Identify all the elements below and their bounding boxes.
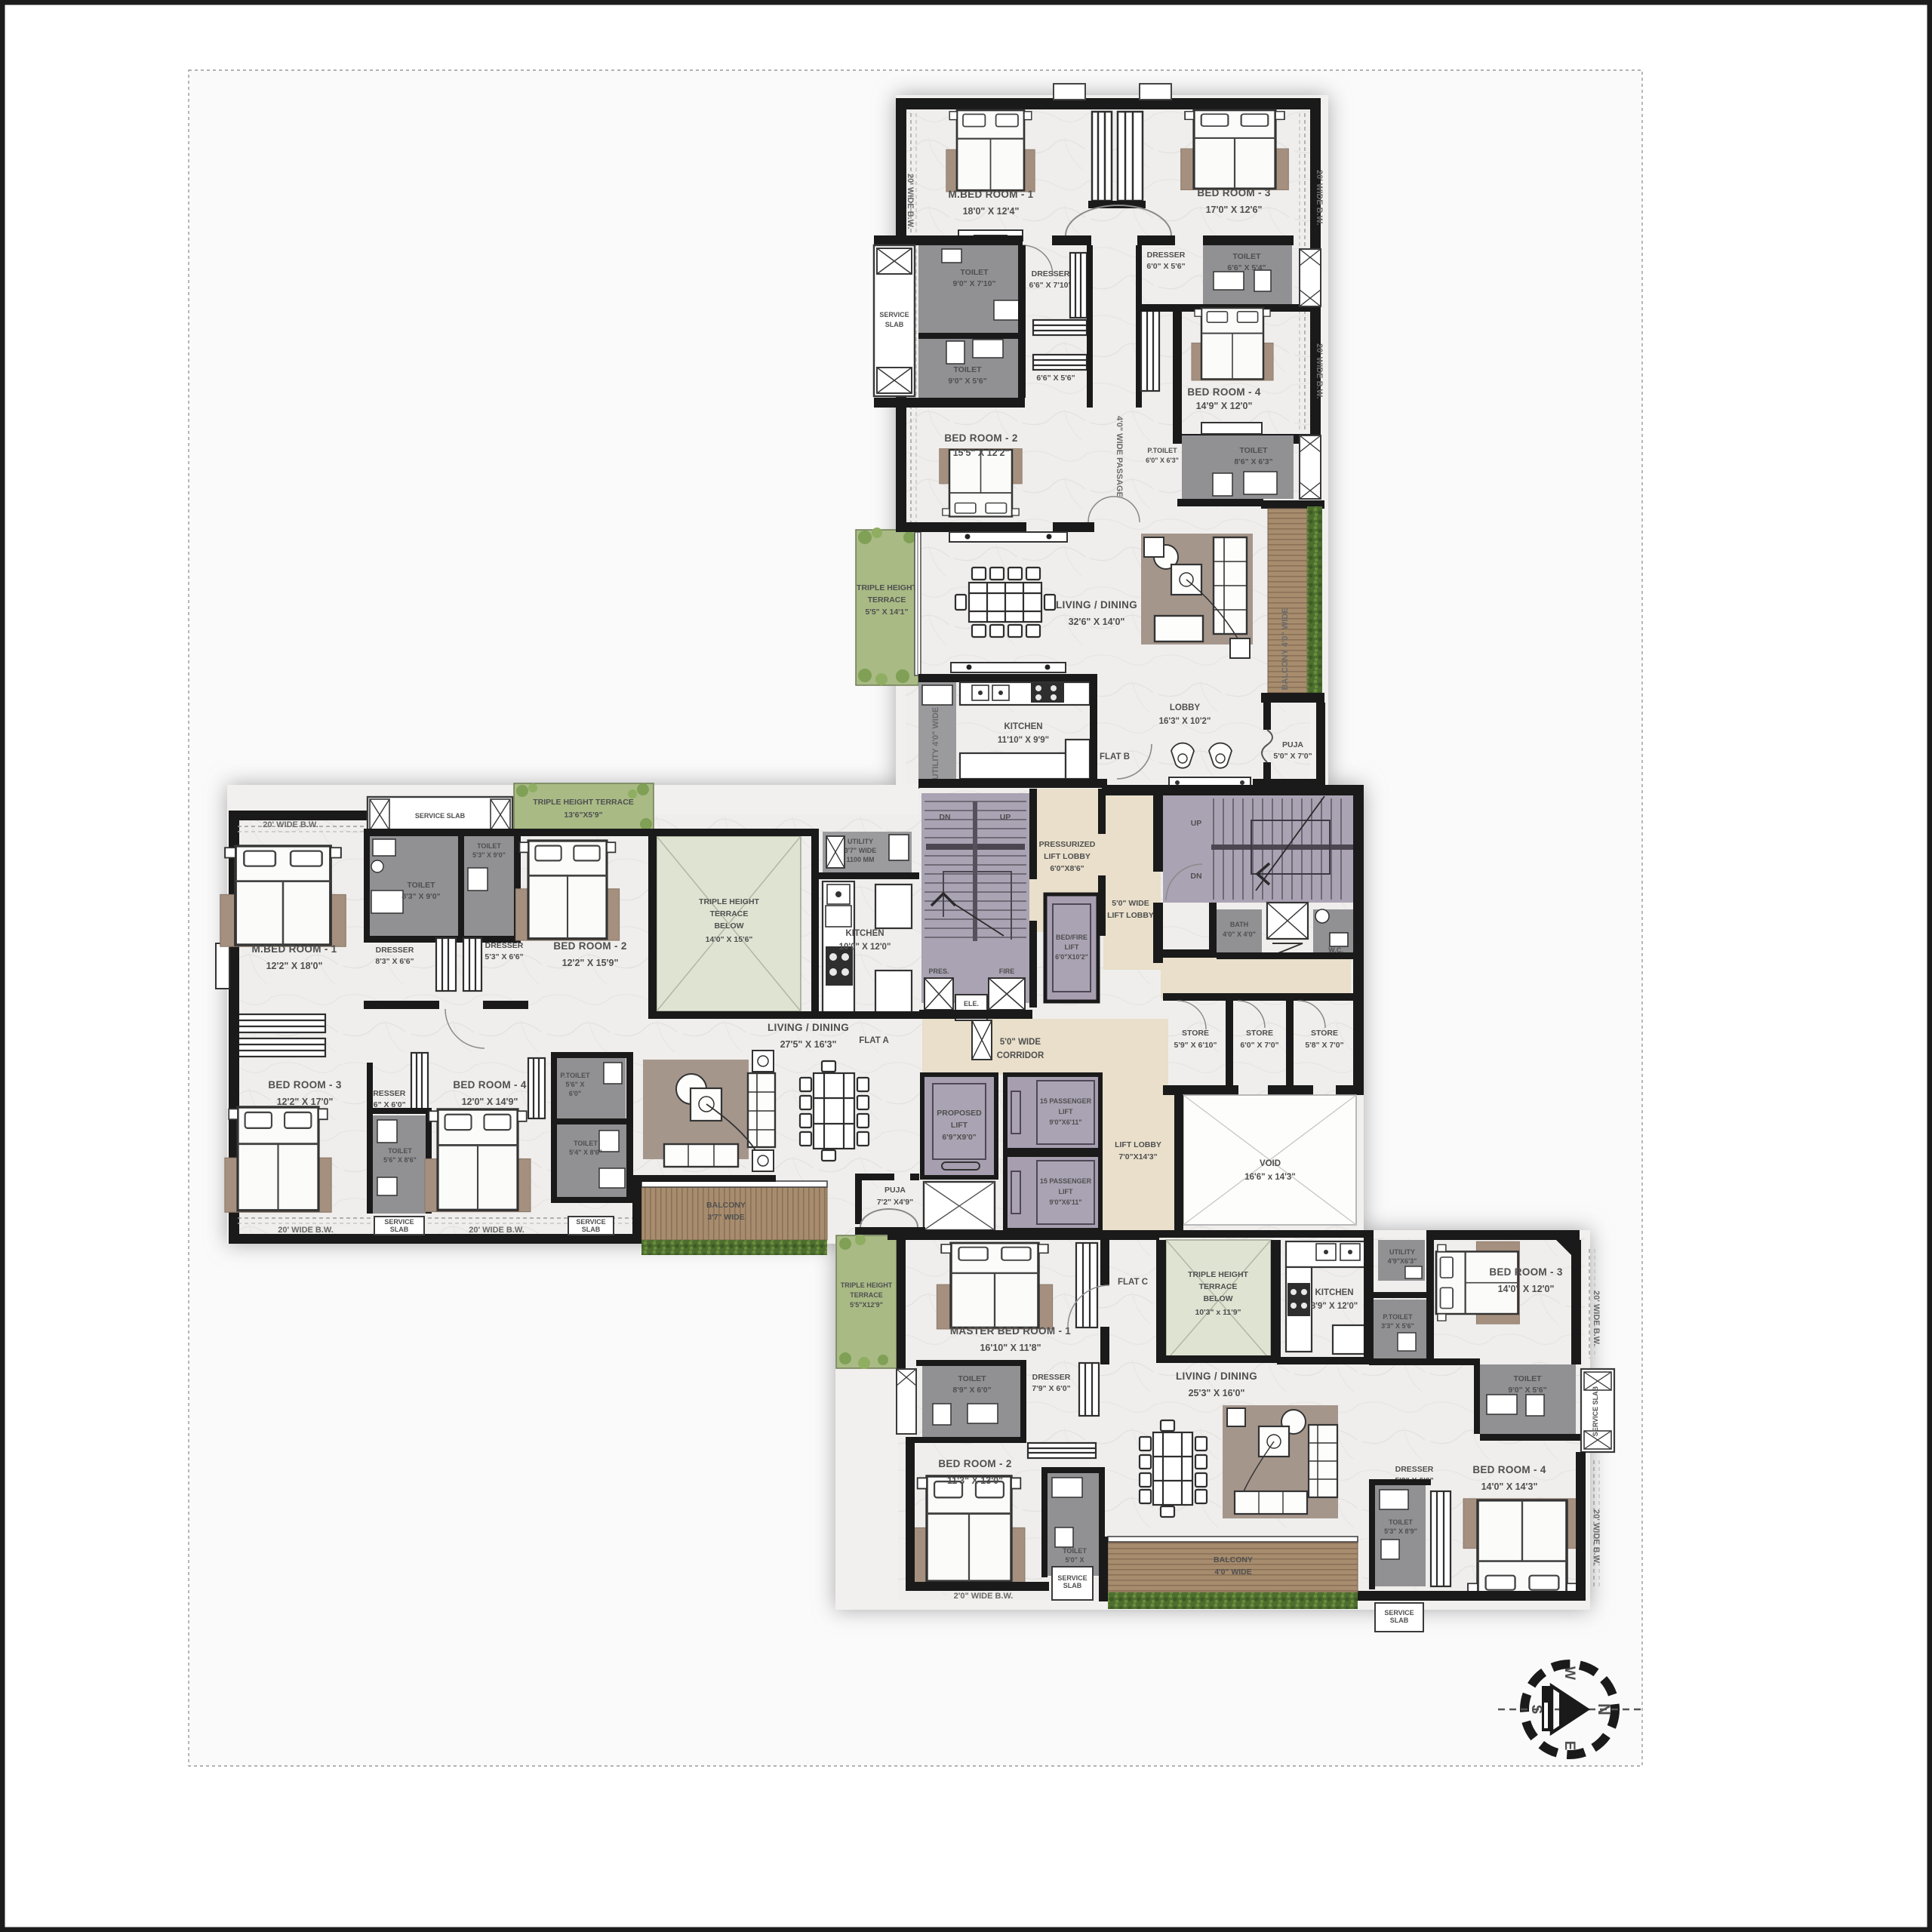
svg-text:TOILET: TOILET xyxy=(1232,252,1261,261)
svg-text:SERVICE: SERVICE xyxy=(576,1218,605,1226)
svg-text:7'0"X14'3": 7'0"X14'3" xyxy=(1118,1152,1157,1161)
svg-text:LOBBY: LOBBY xyxy=(1170,703,1201,712)
svg-text:20' WIDE B.W.: 20' WIDE B.W. xyxy=(906,174,915,229)
svg-text:8'3" X 6'6": 8'3" X 6'6" xyxy=(375,957,414,966)
svg-text:STORE: STORE xyxy=(1182,1029,1209,1038)
svg-text:TOILET: TOILET xyxy=(953,365,982,374)
svg-text:TOILET: TOILET xyxy=(958,1374,986,1383)
svg-text:TOILET: TOILET xyxy=(960,268,989,277)
svg-text:14'9" X 12'0": 14'9" X 12'0" xyxy=(1196,401,1253,411)
svg-text:3'7" WIDE: 3'7" WIDE xyxy=(707,1213,745,1222)
svg-text:FLAT C: FLAT C xyxy=(1118,1278,1148,1287)
svg-text:DRESSER: DRESSER xyxy=(485,941,524,950)
svg-text:LIFT: LIFT xyxy=(1065,943,1079,951)
svg-text:TRIPLE HEIGHT: TRIPLE HEIGHT xyxy=(841,1281,893,1289)
svg-text:6'6" X 7'10": 6'6" X 7'10" xyxy=(1029,281,1072,290)
svg-text:20' WIDE B.W.: 20' WIDE B.W. xyxy=(1315,343,1324,399)
svg-text:4'0" X 4'0": 4'0" X 4'0" xyxy=(1223,931,1256,938)
svg-text:11'3" X 13'0": 11'3" X 13'0" xyxy=(947,1475,1003,1486)
svg-text:14'0" X 12'0": 14'0" X 12'0" xyxy=(1498,1284,1555,1294)
svg-text:DRESSER: DRESSER xyxy=(1032,1373,1071,1382)
svg-text:PROPOSED: PROPOSED xyxy=(937,1109,982,1118)
svg-text:20' WIDE B.W.: 20' WIDE B.W. xyxy=(263,820,318,829)
svg-text:10'3" x 11'9": 10'3" x 11'9" xyxy=(1195,1308,1241,1317)
svg-text:BELOW: BELOW xyxy=(1203,1294,1232,1303)
svg-text:27'5" X 16'3": 27'5" X 16'3" xyxy=(780,1039,837,1050)
svg-text:P.TOILET: P.TOILET xyxy=(1383,1313,1413,1321)
svg-text:6'6" X 5'4": 6'6" X 5'4" xyxy=(1227,263,1266,272)
svg-text:BED ROOM - 2: BED ROOM - 2 xyxy=(553,940,626,952)
svg-text:9'0" X 5'6": 9'0" X 5'6" xyxy=(1508,1386,1546,1395)
svg-text:TOILET: TOILET xyxy=(477,842,501,850)
svg-text:LIFT: LIFT xyxy=(1059,1188,1073,1195)
svg-text:1100 MM: 1100 MM xyxy=(846,856,874,863)
svg-text:UP: UP xyxy=(1000,813,1011,822)
svg-text:15 PASSENGER: 15 PASSENGER xyxy=(1040,1177,1092,1185)
svg-text:W: W xyxy=(1561,1666,1577,1680)
svg-text:SLAB: SLAB xyxy=(885,321,904,328)
svg-text:7'9" X 6'0": 7'9" X 6'0" xyxy=(1032,1384,1070,1393)
svg-text:5'3" X 6'6": 5'3" X 6'6" xyxy=(485,952,523,961)
svg-text:SLAB: SLAB xyxy=(390,1226,409,1233)
svg-text:VOID: VOID xyxy=(1260,1159,1281,1168)
svg-text:6'0" X 6'3": 6'0" X 6'3" xyxy=(1146,457,1179,464)
svg-text:8'9" X 6'0": 8'9" X 6'0" xyxy=(952,1386,991,1395)
svg-text:DRESSER: DRESSER xyxy=(376,946,414,955)
svg-text:DRESSER: DRESSER xyxy=(368,1089,406,1098)
svg-text:12'2" X 18'0": 12'2" X 18'0" xyxy=(266,961,323,971)
svg-text:SERVICE SLAB: SERVICE SLAB xyxy=(1592,1386,1599,1436)
svg-text:BALCONY 4'0" WIDE: BALCONY 4'0" WIDE xyxy=(1281,608,1290,690)
svg-text:6'9"X9'0": 6'9"X9'0" xyxy=(942,1133,976,1142)
svg-text:LIFT: LIFT xyxy=(951,1121,968,1130)
svg-text:SERVICE: SERVICE xyxy=(1384,1609,1414,1617)
svg-text:TOILET: TOILET xyxy=(1063,1547,1087,1555)
svg-text:DRESSER: DRESSER xyxy=(1032,269,1070,278)
svg-text:5'4" X 8'6": 5'4" X 8'6" xyxy=(569,1149,602,1156)
svg-text:15'5" X 12'2": 15'5" X 12'2" xyxy=(953,448,1010,458)
svg-text:5'0" WIDE: 5'0" WIDE xyxy=(1000,1038,1041,1047)
svg-text:N: N xyxy=(1595,1703,1614,1715)
svg-text:KITCHEN: KITCHEN xyxy=(1004,722,1042,731)
svg-text:5'9" X 6'10": 5'9" X 6'10" xyxy=(1174,1041,1217,1050)
svg-text:9'0" X 7'10": 9'0" X 7'10" xyxy=(953,279,996,288)
svg-text:BATH: BATH xyxy=(1230,921,1248,928)
svg-text:TOILET: TOILET xyxy=(388,1147,412,1155)
svg-text:20' WIDE B.W.: 20' WIDE B.W. xyxy=(1315,170,1324,226)
svg-text:BED ROOM - 3: BED ROOM - 3 xyxy=(268,1079,342,1091)
svg-text:LIVING / DINING: LIVING / DINING xyxy=(768,1022,849,1033)
svg-text:12'2" X 15'9": 12'2" X 15'9" xyxy=(562,958,619,968)
svg-text:TERRACE: TERRACE xyxy=(868,595,906,605)
svg-text:TOILET: TOILET xyxy=(574,1140,598,1147)
svg-text:6'0" X 5'6": 6'0" X 5'6" xyxy=(1146,262,1185,271)
svg-text:12'2" X 17'0": 12'2" X 17'0" xyxy=(277,1097,334,1107)
svg-text:DN: DN xyxy=(939,813,950,822)
svg-text:5'5" X 14'1": 5'5" X 14'1" xyxy=(866,608,909,617)
svg-text:15 PASSENGER: 15 PASSENGER xyxy=(1040,1097,1092,1105)
svg-text:TERRACE: TERRACE xyxy=(850,1291,883,1299)
svg-text:3'7" WIDE: 3'7" WIDE xyxy=(844,847,876,854)
svg-text:BALCONY: BALCONY xyxy=(706,1201,746,1210)
svg-text:6'0": 6'0" xyxy=(569,1090,581,1097)
svg-text:S: S xyxy=(1528,1705,1544,1715)
svg-text:BED ROOM - 3: BED ROOM - 3 xyxy=(1489,1266,1563,1278)
svg-text:5'6" X 8'6": 5'6" X 8'6" xyxy=(383,1156,417,1164)
svg-text:5'0" X: 5'0" X xyxy=(1066,1556,1084,1564)
svg-text:10'0" X 12'0": 10'0" X 12'0" xyxy=(839,943,891,952)
svg-text:STORE: STORE xyxy=(1246,1029,1273,1038)
svg-text:DN: DN xyxy=(1190,872,1201,881)
svg-text:TRIPLE HEIGHT: TRIPLE HEIGHT xyxy=(857,583,918,592)
svg-text:6'0" X 7'0": 6'0" X 7'0" xyxy=(1240,1041,1278,1050)
svg-text:5'0" WIDE: 5'0" WIDE xyxy=(1112,899,1149,908)
svg-text:STORE: STORE xyxy=(1311,1029,1338,1038)
svg-text:25'3" X 16'0": 25'3" X 16'0" xyxy=(1189,1388,1245,1398)
svg-text:SLAB: SLAB xyxy=(582,1226,601,1233)
svg-text:TRIPLE HEIGHT: TRIPLE HEIGHT xyxy=(699,897,760,906)
svg-text:LIFT LOBBY: LIFT LOBBY xyxy=(1044,852,1091,861)
svg-text:5'5"X12'9": 5'5"X12'9" xyxy=(850,1301,883,1309)
svg-text:DRESSER: DRESSER xyxy=(1395,1465,1434,1474)
svg-text:8'9" X 12'0": 8'9" X 12'0" xyxy=(1311,1302,1358,1311)
svg-text:TOILET: TOILET xyxy=(1239,446,1268,455)
svg-text:9'0"X6'11": 9'0"X6'11" xyxy=(1049,1198,1081,1206)
svg-text:TRIPLE HEIGHT TERRACE: TRIPLE HEIGHT TERRACE xyxy=(533,798,634,807)
svg-text:FIRE: FIRE xyxy=(999,968,1015,975)
svg-text:MASTER BED ROOM - 1: MASTER BED ROOM - 1 xyxy=(950,1325,1071,1337)
svg-text:M.BED ROOM - 1: M.BED ROOM - 1 xyxy=(949,189,1034,200)
svg-text:LIFT LOBBY: LIFT LOBBY xyxy=(1107,911,1154,920)
svg-text:BED ROOM - 4: BED ROOM - 4 xyxy=(1187,386,1261,398)
svg-text:11'10" X 9'9": 11'10" X 9'9" xyxy=(998,736,1049,745)
svg-text:UTILITY 4'0" WIDE: UTILITY 4'0" WIDE xyxy=(931,707,940,780)
svg-text:BED ROOM - 3: BED ROOM - 3 xyxy=(1197,187,1271,198)
svg-text:LIFT: LIFT xyxy=(1059,1108,1073,1115)
svg-text:14'0" X 15'6": 14'0" X 15'6" xyxy=(706,935,753,944)
svg-text:8'6" X 6'3": 8'6" X 6'3" xyxy=(1234,457,1272,466)
svg-text:BED ROOM - 2: BED ROOM - 2 xyxy=(938,1458,1011,1469)
svg-text:ELE.: ELE. xyxy=(964,1000,979,1008)
svg-text:8'3" X 9'0": 8'3" X 9'0" xyxy=(401,892,440,901)
svg-text:4'0" WIDE PASSAGE: 4'0" WIDE PASSAGE xyxy=(1115,416,1124,497)
svg-text:FLAT B: FLAT B xyxy=(1100,752,1130,761)
svg-text:32'6" X 14'0": 32'6" X 14'0" xyxy=(1069,617,1125,627)
svg-text:SERVICE: SERVICE xyxy=(879,311,909,318)
svg-text:BED ROOM - 4: BED ROOM - 4 xyxy=(1472,1464,1546,1475)
svg-text:13'6"X5'9": 13'6"X5'9" xyxy=(564,811,602,820)
svg-text:14'0" X 14'3": 14'0" X 14'3" xyxy=(1481,1481,1538,1492)
svg-text:SERVICE SLAB: SERVICE SLAB xyxy=(415,812,466,820)
svg-text:20' WIDE B.W.: 20' WIDE B.W. xyxy=(278,1226,334,1235)
svg-text:SLAB: SLAB xyxy=(1390,1617,1409,1624)
svg-text:20' WIDE B.W.: 20' WIDE B.W. xyxy=(469,1226,525,1235)
svg-text:2'0" WIDE B.W.: 2'0" WIDE B.W. xyxy=(954,1592,1014,1601)
svg-text:18'0" X 12'4": 18'0" X 12'4" xyxy=(963,206,1020,217)
svg-text:6'6" X 5'6": 6'6" X 5'6" xyxy=(1036,374,1075,383)
svg-text:16'10" X 11'8": 16'10" X 11'8" xyxy=(980,1343,1041,1353)
svg-text:LIVING / DINING: LIVING / DINING xyxy=(1056,599,1137,611)
svg-text:UTILITY: UTILITY xyxy=(1389,1248,1415,1256)
svg-text:TOILET: TOILET xyxy=(1513,1374,1542,1383)
svg-text:TERRACE: TERRACE xyxy=(1199,1282,1238,1291)
svg-text:5'6" X: 5'6" X xyxy=(566,1081,585,1088)
svg-text:6'0"X10'2": 6'0"X10'2" xyxy=(1055,953,1088,961)
svg-text:12'0" X 14'9": 12'0" X 14'9" xyxy=(462,1097,518,1107)
svg-text:20' WIDE B.W.: 20' WIDE B.W. xyxy=(1592,1291,1601,1346)
svg-text:UTILITY: UTILITY xyxy=(848,838,873,845)
svg-text:BED ROOM - 4: BED ROOM - 4 xyxy=(453,1079,527,1091)
svg-text:3'3" X 5'6": 3'3" X 5'6" xyxy=(1381,1322,1414,1330)
svg-text:LIVING / DINING: LIVING / DINING xyxy=(1176,1371,1257,1382)
svg-text:PUJA: PUJA xyxy=(1282,740,1303,749)
svg-text:4'9"X6'3": 4'9"X6'3" xyxy=(1388,1257,1417,1265)
svg-text:E: E xyxy=(1561,1741,1577,1751)
svg-text:BALCONY: BALCONY xyxy=(1214,1555,1253,1564)
svg-text:5'0" X 7'0": 5'0" X 7'0" xyxy=(1273,752,1312,761)
svg-text:5'3" X 8'9": 5'3" X 8'9" xyxy=(1384,1527,1417,1535)
svg-text:6'0"X8'6": 6'0"X8'6" xyxy=(1050,864,1084,873)
svg-text:PRESSURIZED: PRESSURIZED xyxy=(1039,840,1096,849)
svg-text:FLAT A: FLAT A xyxy=(859,1036,889,1045)
svg-text:9'0"X6'11": 9'0"X6'11" xyxy=(1049,1118,1081,1126)
svg-text:20' WIDE B.W.: 20' WIDE B.W. xyxy=(1592,1509,1601,1565)
svg-text:BED ROOM - 2: BED ROOM - 2 xyxy=(944,432,1017,444)
svg-text:KITCHEN: KITCHEN xyxy=(1315,1288,1353,1297)
svg-text:M.BED ROOM - 1: M.BED ROOM - 1 xyxy=(252,943,337,955)
svg-text:DRESSER: DRESSER xyxy=(1147,251,1186,260)
svg-text:UP: UP xyxy=(1191,819,1202,828)
svg-text:P.TOILET: P.TOILET xyxy=(560,1072,590,1079)
svg-text:4'0" WIDE: 4'0" WIDE xyxy=(1214,1567,1252,1577)
svg-text:16'6" x 14'3": 16'6" x 14'3" xyxy=(1244,1173,1296,1182)
svg-text:P.TOILET: P.TOILET xyxy=(1147,447,1177,454)
svg-text:SERVICE: SERVICE xyxy=(384,1218,414,1226)
svg-text:TOILET: TOILET xyxy=(407,881,435,890)
svg-text:17'0" X 12'6": 17'0" X 12'6" xyxy=(1206,205,1263,215)
svg-text:7'2" X4'9": 7'2" X4'9" xyxy=(877,1198,913,1207)
svg-text:16'3" X 10'2": 16'3" X 10'2" xyxy=(1159,717,1211,726)
svg-text:BELOW: BELOW xyxy=(714,921,743,931)
svg-text:5'3" X 9'0": 5'3" X 9'0" xyxy=(472,851,506,859)
svg-text:KITCHEN: KITCHEN xyxy=(845,929,884,938)
svg-text:TRIPLE HEIGHT: TRIPLE HEIGHT xyxy=(1188,1270,1249,1279)
svg-text:TOILET: TOILET xyxy=(1389,1518,1413,1526)
svg-text:LIFT LOBBY: LIFT LOBBY xyxy=(1115,1140,1161,1149)
svg-text:CORRIDOR: CORRIDOR xyxy=(997,1051,1044,1060)
svg-text:PRES.: PRES. xyxy=(928,968,949,975)
svg-text:SLAB: SLAB xyxy=(1063,1582,1082,1589)
svg-text:TERRACE: TERRACE xyxy=(710,909,749,918)
svg-text:9'0" X 5'6": 9'0" X 5'6" xyxy=(948,377,986,386)
svg-text:BED/FIRE: BED/FIRE xyxy=(1056,934,1088,941)
svg-text:PUJA: PUJA xyxy=(884,1186,906,1195)
svg-text:SERVICE: SERVICE xyxy=(1057,1574,1087,1582)
svg-text:5'8" X 7'0": 5'8" X 7'0" xyxy=(1305,1041,1343,1050)
